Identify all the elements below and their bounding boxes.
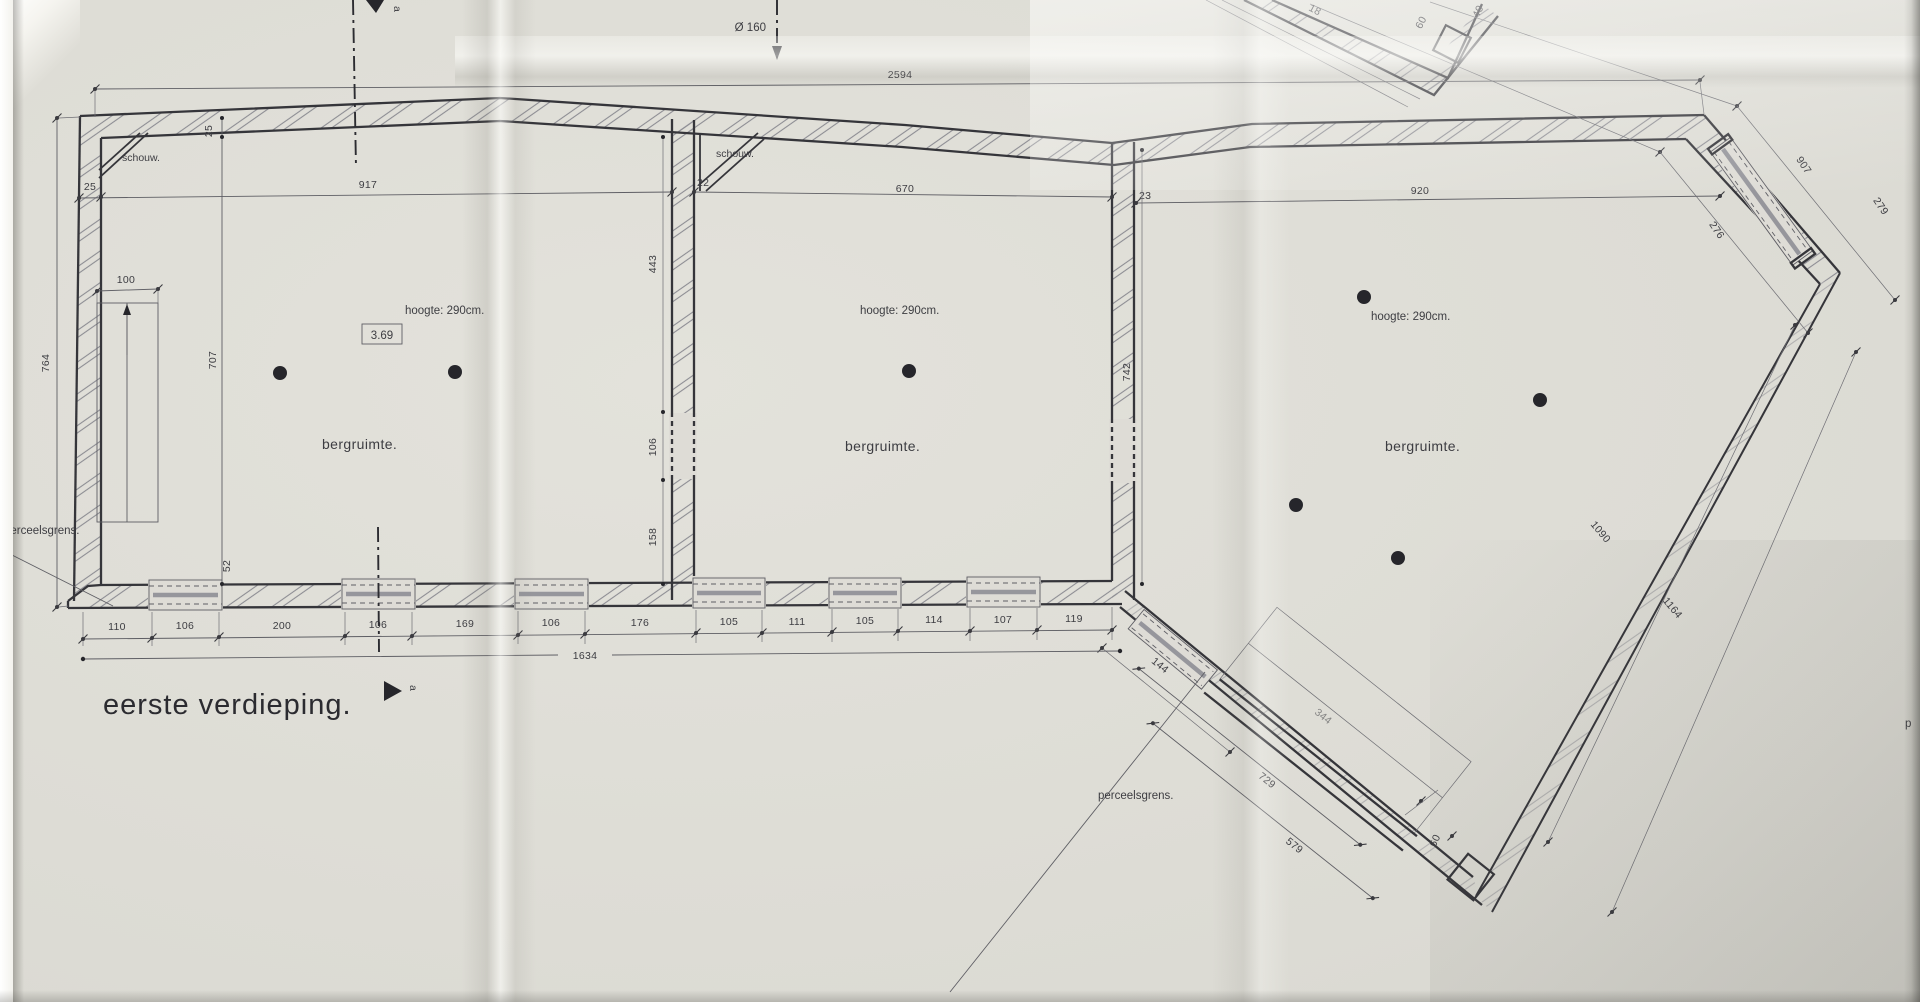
svg-text:670: 670 [896, 183, 914, 195]
svg-text:169: 169 [456, 618, 474, 630]
column-dot [273, 366, 287, 380]
svg-text:111: 111 [789, 616, 806, 628]
svg-text:707: 707 [207, 351, 219, 369]
dim-room1-depth: 707 52 [207, 135, 233, 586]
stair-note: 344 [1312, 706, 1334, 727]
svg-text:917: 917 [359, 179, 377, 191]
parcel-label-left: perceelsgrens. [4, 525, 79, 537]
column-dot [1391, 551, 1405, 565]
level-box: 3.69 [371, 330, 393, 342]
dim-stair-run-outer: 579 [1283, 835, 1305, 856]
svg-text:764: 764 [40, 354, 52, 372]
room3-height-note: hoogte: 290cm. [1371, 311, 1450, 323]
svg-text:200: 200 [273, 620, 291, 632]
room1-height-note: hoogte: 290cm. [405, 305, 484, 317]
svg-text:279: 279 [1870, 195, 1890, 217]
diagonal-window [1128, 609, 1218, 690]
svg-text:105: 105 [856, 615, 874, 627]
dim-stair-run-inner: 729 [1256, 770, 1278, 791]
svg-text:107: 107 [994, 614, 1012, 626]
stairs-right: 344 729 579 [1105, 561, 1480, 912]
dim-divider12-thk: 22 [697, 177, 709, 189]
bottom-dim-chain: 110 106 200 106 169 106 176 105 111 105 … [79, 607, 1117, 646]
dim-stair-width: 100 [117, 274, 135, 286]
svg-text:907: 907 [1793, 154, 1813, 176]
chimney-label-2: schouw. [716, 148, 754, 160]
column-dot [1357, 290, 1371, 304]
svg-text:106: 106 [647, 438, 659, 456]
svg-text:105: 105 [720, 616, 738, 628]
room1-label: bergruimte. [322, 436, 397, 452]
svg-text:1164: 1164 [1660, 595, 1684, 621]
parcel-label-right: perceelsgrens. [1098, 790, 1173, 802]
svg-text:106: 106 [542, 617, 560, 629]
section-marker-bottom: a [407, 685, 419, 691]
stairs-left-width-dim: 100 [93, 274, 163, 303]
dim-left-wall-thк: 25 [84, 181, 96, 193]
svg-text:176: 176 [631, 617, 649, 629]
building-walls [68, 98, 1840, 912]
room-3: hoogte: 290cm. bergruimte. [1289, 290, 1547, 565]
fragment-dim-2: 60 [1413, 14, 1429, 30]
dim-divider23-thk: 23 [1139, 190, 1151, 202]
svg-text:25: 25 [203, 125, 215, 137]
room2-height-note: hoogte: 290cm. [860, 305, 939, 317]
floor-plan-svg: 100 344 729 579 60 [0, 0, 1920, 1002]
chimney-label-1: schouw. [122, 152, 160, 164]
blueprint-photo: 100 344 729 579 60 [0, 0, 1920, 1002]
svg-text:2594: 2594 [888, 69, 913, 81]
svg-text:276: 276 [1706, 219, 1726, 241]
svg-text:1090: 1090 [1588, 519, 1613, 546]
parcel-label-edge: p [1905, 718, 1911, 730]
column-dot [448, 365, 462, 379]
svg-text:114: 114 [925, 614, 943, 626]
column-dot [902, 364, 916, 378]
svg-text:742: 742 [1121, 363, 1133, 381]
chamfer-window [1707, 134, 1816, 270]
dim-divider12-segments: 443 106 158 [647, 135, 665, 586]
svg-text:443: 443 [647, 255, 659, 273]
svg-text:1634: 1634 [573, 650, 598, 662]
room2-label: bergruimte. [845, 438, 920, 454]
duct-marker: Ø 160 [735, 0, 782, 60]
page-title: eerste verdieping. [103, 689, 352, 721]
dims-east-wall: 1090 1164 [1544, 321, 1861, 917]
svg-text:119: 119 [1065, 613, 1083, 625]
dim-overall-bottom: 1634 [81, 649, 1122, 662]
svg-text:110: 110 [108, 621, 126, 633]
chimney-room2 [700, 133, 764, 191]
svg-text:158: 158 [647, 528, 659, 546]
section-marker-top: a [391, 6, 403, 12]
dim-room1-width: 25 917 [75, 179, 677, 203]
wall-hatching [68, 98, 1840, 912]
room3-label: bergruimte. [1385, 438, 1460, 454]
dim-room3-width: 23 920 [1132, 185, 1725, 208]
svg-text:106: 106 [176, 620, 194, 632]
dim-bottom-wall-thk: 52 [221, 560, 233, 572]
dim-room2-width: 22 670 [690, 177, 1117, 202]
column-dot [1533, 393, 1547, 407]
svg-text:920: 920 [1411, 185, 1429, 197]
duct-note: Ø 160 [735, 22, 766, 34]
stairs-left [97, 303, 158, 522]
column-dot [1289, 498, 1303, 512]
